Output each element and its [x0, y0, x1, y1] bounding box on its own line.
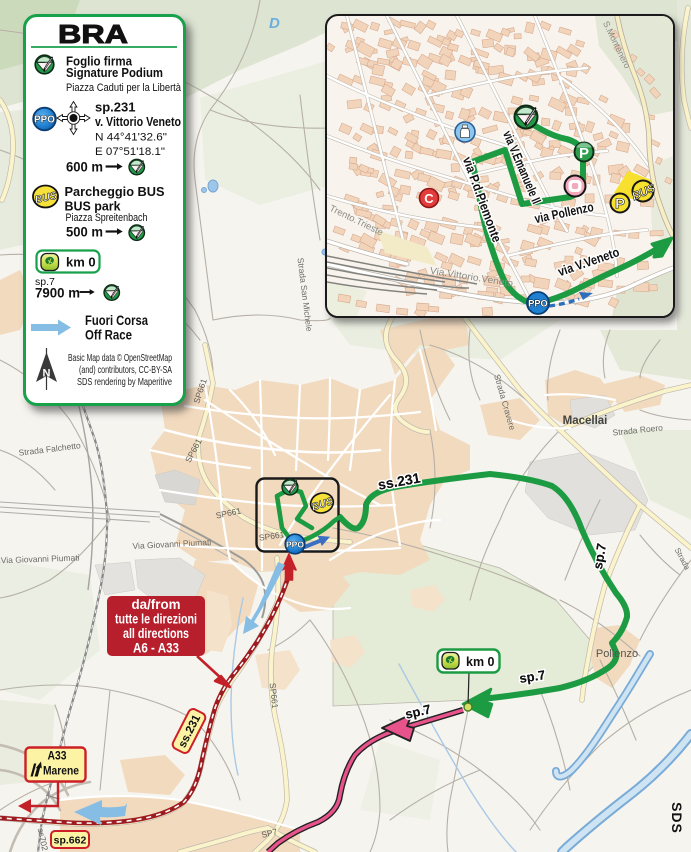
svg-text:C: C — [424, 191, 434, 206]
svg-text:Basic Map data © OpenStreetMap: Basic Map data © OpenStreetMap — [68, 353, 172, 364]
svg-text:BRA: BRA — [58, 19, 128, 49]
svg-text:sp.231: sp.231 — [95, 100, 135, 115]
svg-text:tutte le direzioni: tutte le direzioni — [115, 612, 197, 627]
svg-text:Pollenzo: Pollenzo — [596, 648, 638, 660]
svg-text:Marene: Marene — [43, 766, 79, 778]
svg-text:PPO: PPO — [34, 115, 55, 126]
svg-text:Parcheggio BUS: Parcheggio BUS — [65, 185, 165, 199]
svg-text:7900 m: 7900 m — [35, 286, 80, 301]
svg-text:D: D — [269, 15, 280, 32]
svg-text:P: P — [615, 196, 625, 213]
svg-text:PPO: PPO — [528, 299, 547, 309]
svg-text:P: P — [579, 145, 589, 162]
svg-text:Signature Podium: Signature Podium — [66, 66, 163, 80]
svg-text:N: N — [43, 368, 51, 380]
svg-text:N 44°41'32.6": N 44°41'32.6" — [95, 132, 167, 144]
svg-text:all directions: all directions — [123, 626, 189, 641]
svg-text:Macellai: Macellai — [563, 415, 608, 427]
svg-text:v. Vittorio Veneto: v. Vittorio Veneto — [95, 115, 181, 129]
svg-text:sp.662: sp.662 — [54, 835, 87, 847]
svg-text:SDS rendering by Maperitive: SDS rendering by Maperitive — [77, 377, 172, 388]
svg-text:km 0: km 0 — [66, 255, 96, 270]
svg-text:A6 - A33: A6 - A33 — [133, 641, 179, 656]
svg-text:Off Race: Off Race — [85, 328, 132, 343]
svg-text:km 0: km 0 — [466, 655, 495, 669]
svg-text:Piazza Spreitenbach: Piazza Spreitenbach — [66, 212, 148, 224]
svg-text:Fuori Corsa: Fuori Corsa — [85, 313, 148, 328]
svg-text:SDS: SDS — [669, 802, 685, 834]
svg-text:500 m: 500 m — [66, 224, 103, 240]
svg-text:da/from: da/from — [132, 597, 181, 612]
svg-text:A33: A33 — [48, 751, 67, 763]
svg-text:(and) contributors, CC-BY-SA: (and) contributors, CC-BY-SA — [79, 365, 172, 376]
svg-text:PPO: PPO — [286, 540, 304, 550]
svg-text:600 m: 600 m — [66, 159, 103, 175]
svg-text:Piazza Caduti per la Libertà: Piazza Caduti per la Libertà — [66, 82, 182, 94]
svg-text:E 07°51'18.1": E 07°51'18.1" — [95, 146, 165, 158]
